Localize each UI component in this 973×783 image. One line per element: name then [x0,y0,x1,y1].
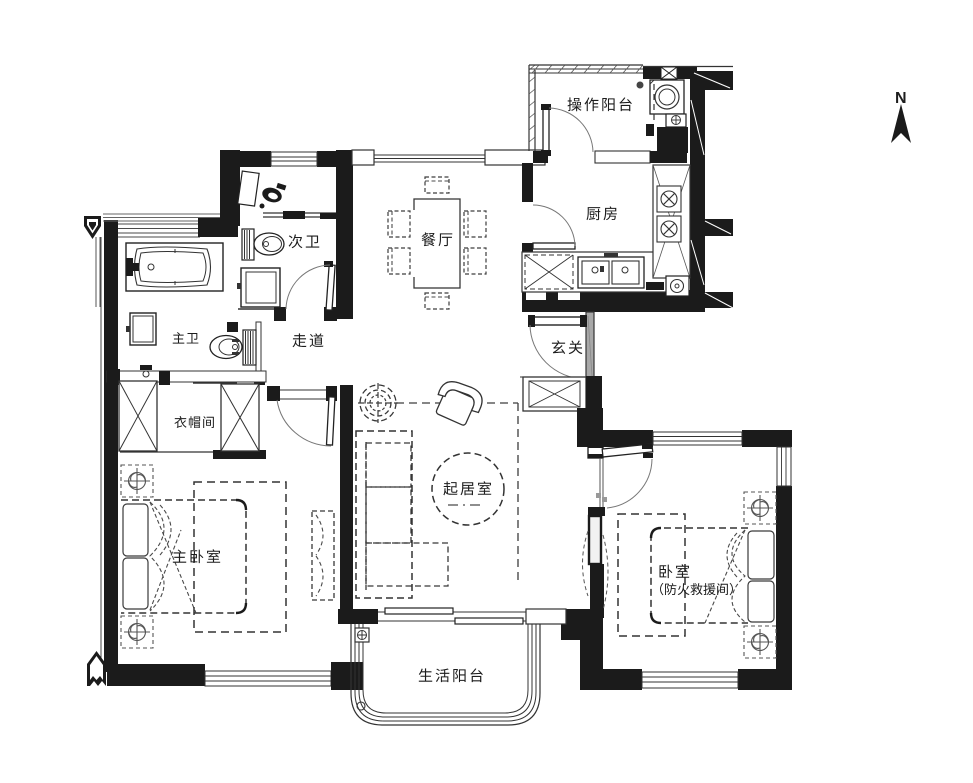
svg-text:N: N [895,90,907,107]
